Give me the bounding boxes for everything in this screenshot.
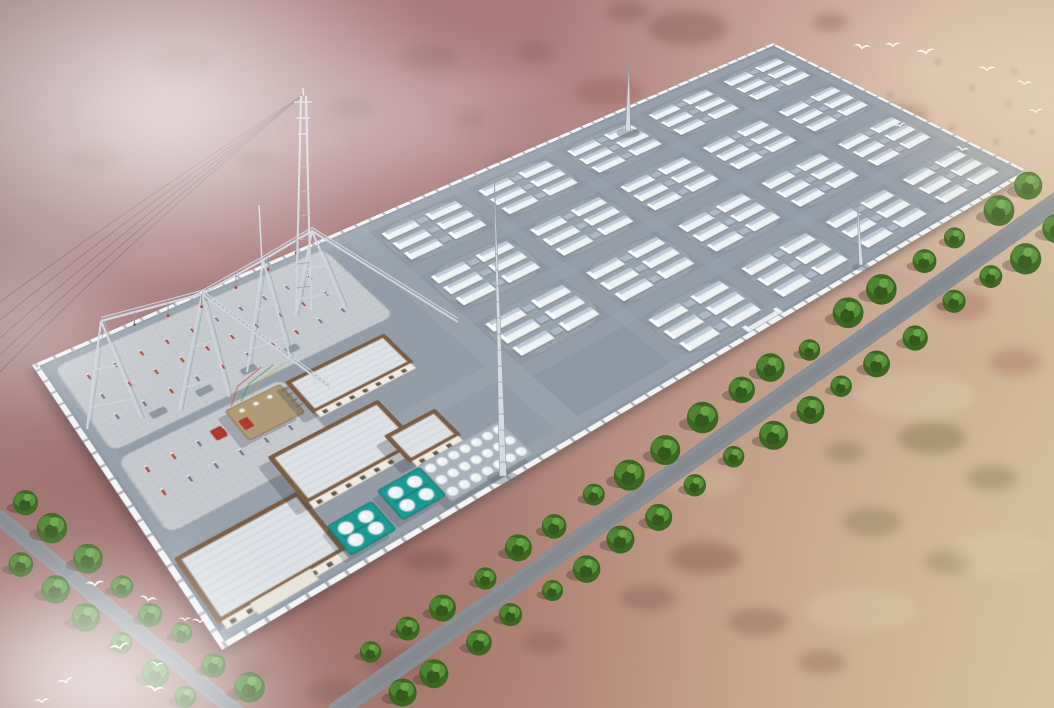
tree-foliage <box>846 302 855 311</box>
bird <box>139 595 157 603</box>
tree-foliage <box>477 634 485 642</box>
tree-foliage <box>551 583 557 589</box>
tree-foliage <box>997 199 1006 208</box>
gantry-leg-inner <box>251 260 267 372</box>
tower-leg <box>296 96 301 312</box>
tree-foliage <box>247 676 256 685</box>
tree-foliage <box>505 612 515 622</box>
tree-foliage <box>24 494 32 502</box>
tree-foliage <box>547 588 557 598</box>
tree-foliage <box>870 361 882 373</box>
tree-foliage <box>836 383 846 393</box>
bird <box>1016 80 1032 87</box>
tree-foliage <box>1018 255 1032 269</box>
tree-foliage <box>365 649 375 659</box>
tree-foliage <box>44 524 58 538</box>
tree-foliage <box>580 566 592 578</box>
bird <box>916 48 936 56</box>
tree-foliage <box>913 329 921 337</box>
tree-foliage <box>120 578 127 585</box>
tree-foliage <box>909 335 920 346</box>
tree-foliage <box>19 556 26 563</box>
gantry-beam-chord <box>101 228 312 318</box>
tree-foliage <box>588 492 598 502</box>
tree-foliage <box>184 689 191 696</box>
tree-foliage <box>613 536 626 549</box>
insulator-tip <box>200 305 203 308</box>
tree-foliage <box>948 298 958 308</box>
tree-foliage <box>180 625 186 631</box>
insulator-tip <box>235 286 238 289</box>
tower-leg <box>306 96 311 310</box>
tree-foliage <box>627 464 636 473</box>
tree-foliage <box>923 253 930 260</box>
tower-rung <box>299 191 308 192</box>
gantry-leg-inner <box>91 321 105 429</box>
tree-foliage <box>1026 175 1034 183</box>
tree-foliage <box>768 357 777 366</box>
tree-foliage <box>618 529 626 537</box>
tree-foliage <box>663 439 672 448</box>
tree-foliage <box>732 449 738 455</box>
tree-foliage <box>771 425 780 434</box>
tree-foliage <box>242 684 256 698</box>
tree-foliage <box>693 477 700 484</box>
tree-foliage <box>402 626 413 637</box>
tree-foliage <box>952 293 959 300</box>
tree-foliage <box>180 694 190 704</box>
tree-foliage <box>84 607 93 616</box>
tree-foliage <box>516 538 524 546</box>
tree-foliage <box>652 514 664 526</box>
tree-foliage <box>473 640 485 652</box>
tree-foliage <box>116 584 126 594</box>
tree-foliage <box>401 682 409 690</box>
gantry-leg <box>247 260 263 372</box>
tree-foliage <box>879 278 888 287</box>
tree-foliage <box>622 471 636 485</box>
bird <box>853 43 871 50</box>
tree-foliage <box>735 387 747 399</box>
tree-foliage <box>212 657 219 664</box>
road-center <box>338 198 1054 708</box>
tree-foliage <box>432 663 441 672</box>
insulator-tip <box>133 323 136 326</box>
tree-foliage <box>766 432 779 445</box>
tree-foliage <box>919 258 930 269</box>
gantry-crossbar <box>184 376 224 387</box>
tree-foliage <box>808 400 816 408</box>
tree-foliage <box>436 605 448 617</box>
gantry-beam <box>312 231 458 322</box>
tree-foliage <box>985 274 995 284</box>
gantry-beam-chord <box>312 228 458 319</box>
tree-foliage <box>148 670 161 683</box>
tree-foliage <box>763 364 776 377</box>
tree-foliage <box>740 380 748 388</box>
tree-foliage <box>441 598 449 606</box>
tree-foliage <box>585 559 593 567</box>
lightning-mast <box>626 64 631 131</box>
tower-tip <box>303 88 304 96</box>
tree-foliage <box>989 268 996 275</box>
tree-foliage <box>657 508 665 516</box>
tree-foliage <box>548 523 559 534</box>
tree-foliage <box>552 518 559 525</box>
tree-foliage <box>86 548 95 557</box>
tower-rung <box>297 262 310 264</box>
tree-foliage <box>689 482 699 492</box>
tree-foliage <box>658 446 672 460</box>
tree-foliage <box>79 614 92 627</box>
tree-foliage <box>592 487 599 494</box>
tree-foliage <box>54 579 63 588</box>
tree-foliage <box>839 378 845 384</box>
tree-foliage <box>177 630 187 640</box>
tower-rung <box>297 286 311 288</box>
tree-foliage <box>808 342 814 348</box>
tree-foliage <box>804 347 814 357</box>
bird <box>955 146 970 153</box>
aerial-scene <box>0 0 1054 708</box>
lightning-spike <box>259 205 262 262</box>
bird <box>893 122 906 128</box>
gantry-leg <box>179 294 202 411</box>
tree-foliage <box>369 644 375 650</box>
tree-foliage <box>15 561 26 572</box>
tree-foliage <box>1023 248 1032 257</box>
tree-foliage <box>480 576 490 586</box>
gantry-crossbar <box>90 399 133 408</box>
bird <box>57 676 75 685</box>
tree-foliage <box>406 620 413 627</box>
tree-foliage <box>840 309 854 323</box>
tree-foliage <box>148 606 155 613</box>
gantry-crossbar <box>298 292 337 299</box>
tree-foliage <box>991 207 1005 221</box>
tree-foliage <box>874 286 888 300</box>
tree-foliage <box>427 670 440 683</box>
gantry-lattice <box>101 229 312 319</box>
insulator-tip <box>267 268 270 271</box>
insulator-tip <box>167 314 170 317</box>
bird <box>978 66 996 71</box>
bird <box>1029 109 1044 114</box>
tree-foliage <box>396 689 409 702</box>
gantry-crossbar <box>304 265 326 269</box>
tree-foliage <box>50 517 59 526</box>
gantry-crossbar <box>192 340 215 346</box>
bird <box>885 43 901 48</box>
tree-foliage <box>509 606 516 613</box>
gantry-leg-inner <box>299 231 316 316</box>
structures-overlay <box>0 0 1054 708</box>
bird <box>179 617 192 621</box>
tree-foliage <box>695 414 709 428</box>
tree-foliage <box>49 586 62 599</box>
gantry-crossbar <box>256 304 275 311</box>
tree-foliage <box>512 544 524 556</box>
tree-foliage <box>953 230 959 236</box>
tree-foliage <box>728 454 738 464</box>
lightning-mast <box>857 197 863 265</box>
tree-foliage <box>700 406 709 415</box>
tree-foliage <box>1021 182 1034 195</box>
bird <box>34 698 50 704</box>
gantry-leg-inner <box>183 294 206 411</box>
tree-foliage <box>875 354 883 362</box>
tree-foliage <box>144 612 155 623</box>
tree-foliage <box>19 500 30 511</box>
tree-foliage <box>80 555 94 569</box>
tree-foliage <box>949 235 959 245</box>
tree-foliage <box>120 635 127 642</box>
gantry-leg <box>87 321 101 429</box>
tree-foliage <box>484 571 491 578</box>
tower-rung <box>298 215 309 216</box>
bird <box>192 619 208 624</box>
tower-rung <box>299 167 307 168</box>
tree-foliage <box>804 406 817 419</box>
tree-foliage <box>207 662 218 673</box>
